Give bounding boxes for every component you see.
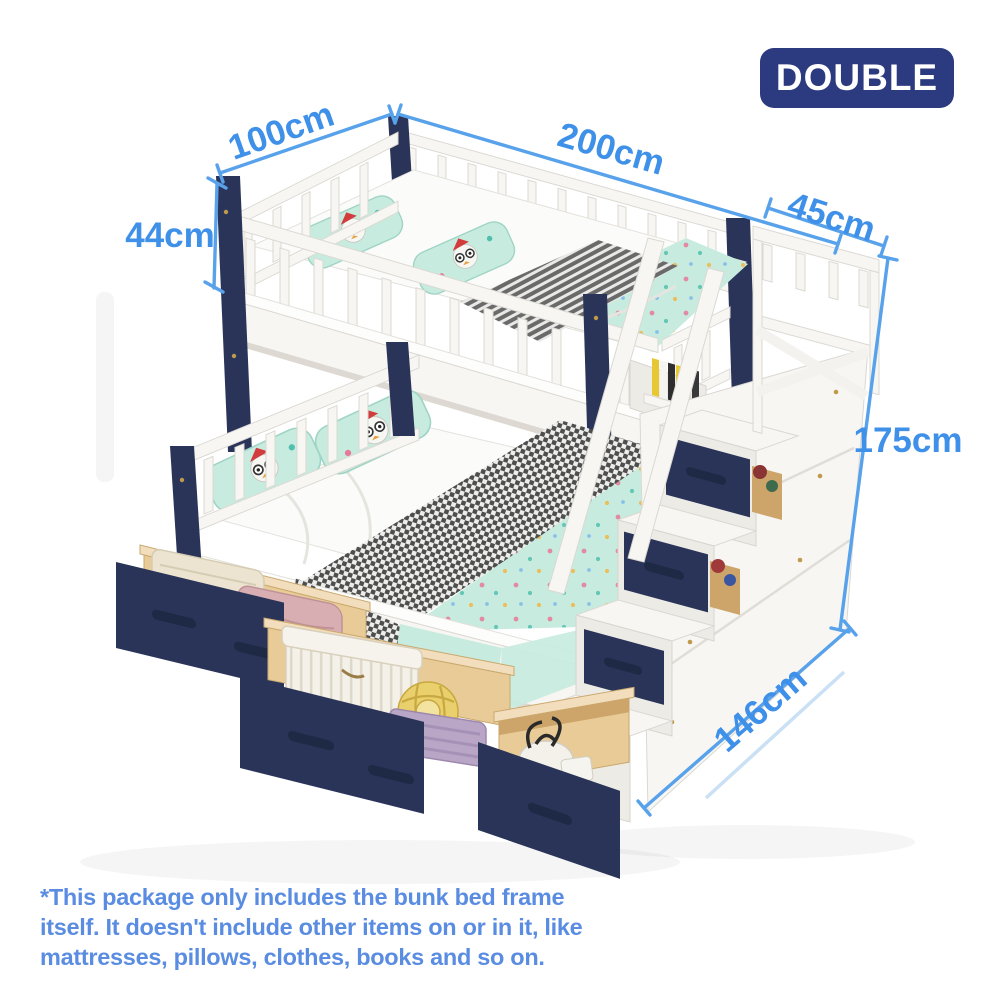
disclaimer-line: *This package only includes the bunk bed… — [40, 882, 582, 912]
dimension-label-44cm: 44cm — [125, 216, 215, 255]
disclaimer-line: itself. It doesn't include other items o… — [40, 912, 582, 942]
badge-label: DOUBLE — [776, 57, 938, 99]
dimension-label-175cm: 175cm — [854, 421, 963, 460]
product-dimension-diagram: 100cm 200cm 45cm 44cm 175cm 146cm — [0, 0, 1000, 1000]
dimension-label-100cm: 100cm — [223, 95, 339, 168]
dimension-guardrail-height: 44cm — [125, 178, 226, 292]
bunk-bed-illustration: 100cm 200cm 45cm 44cm 175cm 146cm — [0, 0, 1000, 1000]
floor-shadow — [575, 825, 915, 859]
disclaimer-note: *This package only includes the bunk bed… — [40, 882, 582, 972]
disclaimer-line: mattresses, pillows, clothes, books and … — [40, 942, 582, 972]
background-smudge — [96, 292, 114, 482]
double-badge: DOUBLE — [760, 48, 954, 108]
dimension-label-200cm: 200cm — [553, 115, 669, 183]
